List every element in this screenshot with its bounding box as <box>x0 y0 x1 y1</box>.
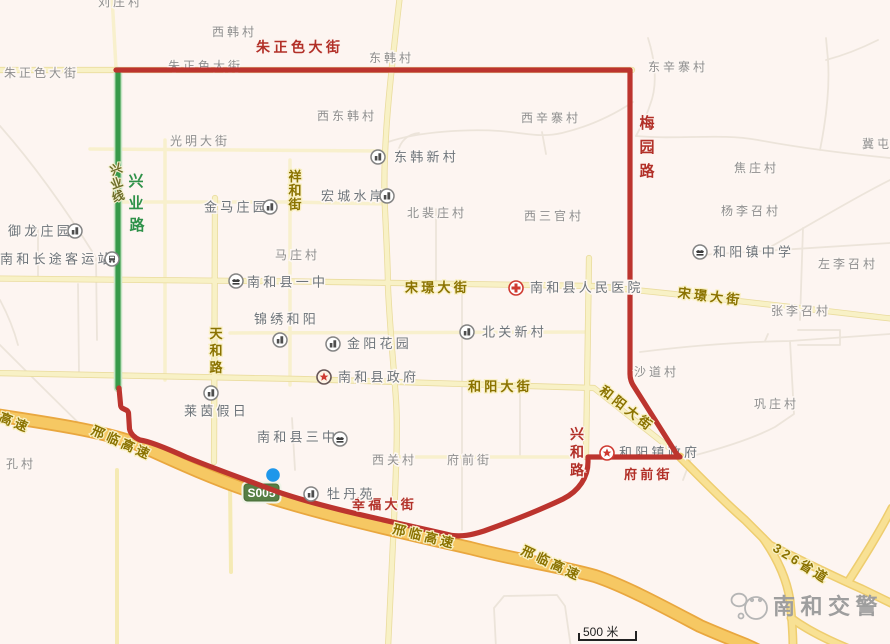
svg-text:业: 业 <box>128 195 143 212</box>
svg-text:金阳花园: 金阳花园 <box>347 336 412 351</box>
svg-text:南和县一中: 南和县一中 <box>247 275 328 290</box>
svg-text:路: 路 <box>209 360 223 375</box>
svg-text:和: 和 <box>288 183 301 198</box>
svg-text:马庄村: 马庄村 <box>275 247 320 262</box>
svg-text:宋璟大街: 宋璟大街 <box>404 280 470 295</box>
svg-text:街: 街 <box>287 197 301 212</box>
svg-text:左李召村: 左李召村 <box>818 256 878 271</box>
svg-text:南和长途客运站: 南和长途客运站 <box>0 252 114 267</box>
svg-text:东韩新村: 东韩新村 <box>394 150 459 165</box>
svg-text:兴: 兴 <box>570 426 584 442</box>
svg-text:兴: 兴 <box>128 173 143 190</box>
svg-text:路: 路 <box>570 462 585 478</box>
svg-text:园: 园 <box>639 139 654 156</box>
svg-text:和阳大街: 和阳大街 <box>468 379 533 394</box>
svg-text:张李召村: 张李召村 <box>771 303 831 318</box>
svg-text:牡丹苑: 牡丹苑 <box>327 487 376 502</box>
svg-text:南和县人民医院: 南和县人民医院 <box>530 280 644 295</box>
svg-text:锦绣和阳: 锦绣和阳 <box>254 312 319 327</box>
svg-text:光明大街: 光明大街 <box>170 134 230 148</box>
svg-text:和: 和 <box>209 343 222 358</box>
svg-text:北裴庄村: 北裴庄村 <box>407 205 467 220</box>
svg-text:莱茵假日: 莱茵假日 <box>184 404 249 419</box>
svg-text:宏城水岸: 宏城水岸 <box>321 189 386 204</box>
svg-text:府前街: 府前街 <box>624 467 673 482</box>
svg-text:和: 和 <box>570 444 584 460</box>
svg-text:南和县三中: 南和县三中 <box>257 430 338 445</box>
svg-text:西三官村: 西三官村 <box>524 208 584 223</box>
svg-text:金马庄园: 金马庄园 <box>204 200 269 215</box>
svg-text:500 米: 500 米 <box>583 625 618 639</box>
svg-text:北关新村: 北关新村 <box>482 325 547 340</box>
svg-text:西关村: 西关村 <box>372 453 417 467</box>
svg-text:和阳镇中学: 和阳镇中学 <box>713 245 794 260</box>
svg-text:西东韩村: 西东韩村 <box>317 108 377 123</box>
svg-text:孔村: 孔村 <box>6 457 36 471</box>
svg-text:巩庄村: 巩庄村 <box>754 396 799 411</box>
svg-text:沙道村: 沙道村 <box>634 365 679 379</box>
svg-text:梅: 梅 <box>639 114 654 132</box>
svg-text:冀屯村: 冀屯村 <box>862 137 890 151</box>
svg-text:朱正色大街: 朱正色大街 <box>256 39 344 55</box>
svg-text:西辛寨村: 西辛寨村 <box>521 110 581 125</box>
svg-text:刘庄村: 刘庄村 <box>98 0 143 9</box>
svg-text:杨李召村: 杨李召村 <box>721 203 781 218</box>
svg-text:西韩村: 西韩村 <box>212 24 257 39</box>
svg-text:朱正色大街: 朱正色大街 <box>4 66 79 80</box>
svg-text:路: 路 <box>129 216 145 234</box>
svg-text:南和县政府: 南和县政府 <box>338 370 419 385</box>
svg-text:南和交警: 南和交警 <box>773 594 883 619</box>
svg-text:东韩村: 东韩村 <box>369 50 414 65</box>
svg-text:焦庄村: 焦庄村 <box>734 160 779 175</box>
svg-text:路: 路 <box>639 162 655 180</box>
svg-text:御龙庄园: 御龙庄园 <box>8 224 73 239</box>
svg-text:府前街: 府前街 <box>447 452 492 467</box>
svg-text:东辛寨村: 东辛寨村 <box>648 59 708 74</box>
svg-text:祥: 祥 <box>288 169 301 184</box>
svg-text:天: 天 <box>209 326 223 341</box>
